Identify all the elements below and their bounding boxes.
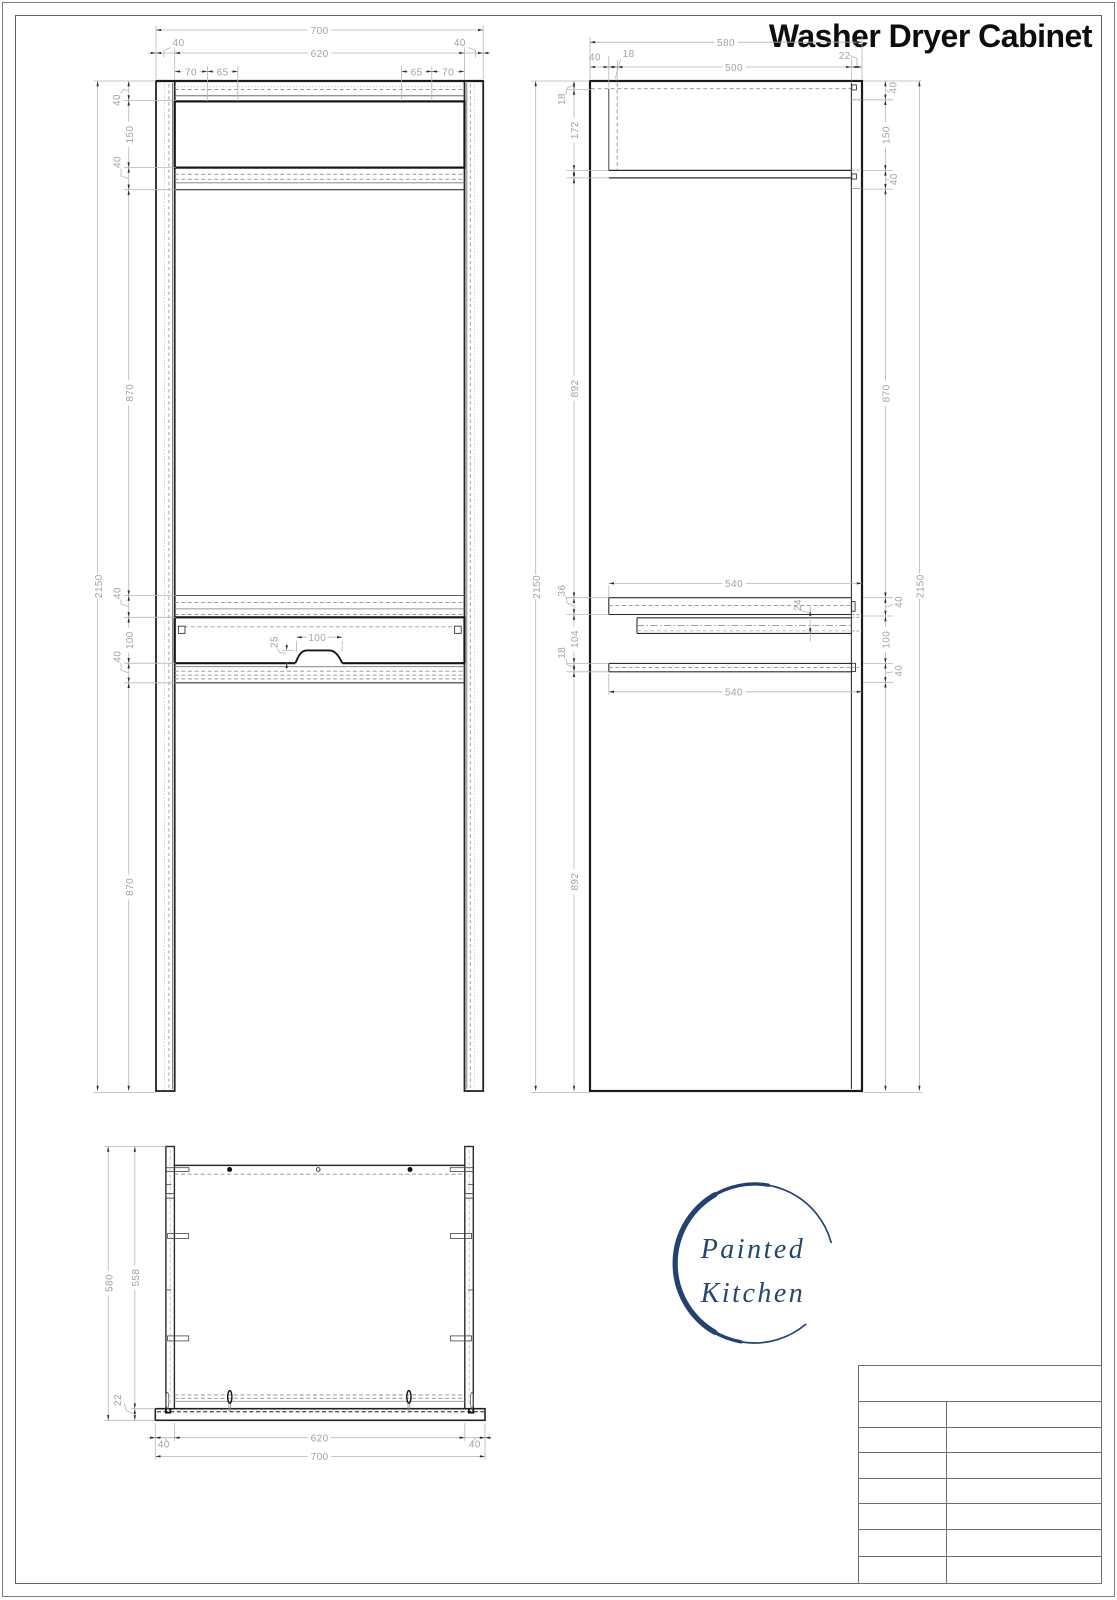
svg-text:36: 36	[557, 585, 568, 597]
svg-text:Kitchen: Kitchen	[700, 1278, 806, 1309]
svg-text:Painted: Painted	[700, 1234, 806, 1265]
svg-text:2150: 2150	[532, 575, 543, 599]
svg-text:150: 150	[125, 126, 136, 144]
svg-text:2150: 2150	[94, 574, 105, 598]
svg-text:620: 620	[311, 1433, 329, 1444]
svg-text:22: 22	[839, 51, 851, 62]
svg-text:104: 104	[570, 630, 581, 648]
svg-text:18: 18	[557, 647, 568, 659]
svg-text:100: 100	[308, 633, 326, 644]
svg-text:580: 580	[104, 1274, 115, 1292]
svg-text:24: 24	[793, 599, 804, 611]
svg-text:40: 40	[454, 38, 466, 49]
svg-text:40: 40	[112, 587, 123, 599]
svg-text:40: 40	[158, 1440, 170, 1451]
svg-text:18: 18	[623, 49, 635, 60]
svg-text:65: 65	[411, 67, 423, 78]
svg-text:40: 40	[469, 1440, 481, 1451]
svg-text:892: 892	[570, 873, 581, 891]
svg-text:892: 892	[570, 379, 581, 397]
svg-text:40: 40	[112, 94, 123, 106]
svg-text:Washer Dryer Cabinet: Washer Dryer Cabinet	[769, 18, 1093, 54]
svg-text:870: 870	[125, 384, 136, 402]
svg-text:100: 100	[882, 631, 893, 649]
svg-text:580: 580	[717, 38, 735, 49]
svg-text:700: 700	[311, 26, 329, 37]
svg-text:40: 40	[173, 38, 185, 49]
svg-text:40: 40	[894, 665, 905, 677]
svg-text:100: 100	[125, 631, 136, 649]
svg-text:65: 65	[217, 67, 229, 78]
svg-text:70: 70	[442, 67, 454, 78]
svg-text:870: 870	[882, 384, 893, 402]
svg-text:500: 500	[725, 63, 743, 74]
svg-text:40: 40	[889, 82, 900, 94]
svg-text:540: 540	[725, 579, 743, 590]
svg-text:870: 870	[125, 878, 136, 896]
svg-text:700: 700	[311, 1452, 329, 1463]
svg-text:18: 18	[557, 93, 568, 105]
svg-text:172: 172	[570, 121, 581, 139]
svg-text:40: 40	[112, 156, 123, 168]
svg-text:540: 540	[725, 688, 743, 699]
svg-text:22: 22	[113, 1394, 124, 1406]
svg-text:40: 40	[589, 53, 601, 64]
svg-text:40: 40	[894, 596, 905, 608]
svg-text:620: 620	[311, 49, 329, 60]
svg-text:40: 40	[112, 651, 123, 663]
svg-text:25: 25	[270, 636, 281, 648]
svg-text:2150: 2150	[916, 574, 927, 598]
svg-text:558: 558	[131, 1269, 142, 1287]
svg-text:150: 150	[882, 126, 893, 144]
svg-text:40: 40	[889, 173, 900, 185]
svg-text:70: 70	[185, 67, 197, 78]
